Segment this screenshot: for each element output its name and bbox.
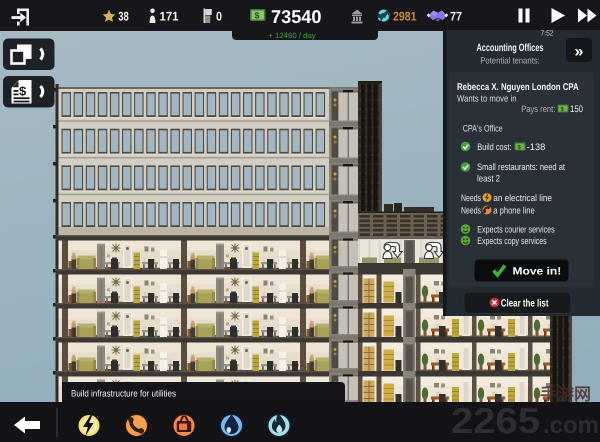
- svg-text:Build infrastructure for utili: Build infrastructure for utilities: [71, 389, 176, 399]
- svg-text:Small restaurants: need at: Small restaurants: need at: [477, 161, 565, 172]
- svg-text:150: 150: [570, 104, 583, 115]
- svg-text:Needs: Needs: [461, 192, 481, 203]
- svg-text:0: 0: [216, 10, 222, 24]
- svg-text:$: $: [255, 11, 260, 21]
- svg-text:Build cost:: Build cost:: [477, 141, 511, 152]
- svg-text:Accounting Offices: Accounting Offices: [477, 42, 544, 54]
- svg-text:2981: 2981: [393, 10, 417, 24]
- svg-text:CPA's Office: CPA's Office: [463, 123, 503, 134]
- svg-text:Rebecca X. Nguyen London CPA: Rebecca X. Nguyen London CPA: [457, 82, 579, 93]
- svg-text:Expects copy services: Expects copy services: [477, 235, 547, 246]
- svg-text:least 2: least 2: [477, 173, 500, 184]
- svg-text:73540: 73540: [271, 6, 322, 27]
- svg-text:Clear the list: Clear the list: [501, 298, 549, 310]
- svg-text:.com: .com: [543, 412, 599, 439]
- svg-text:Pays rent:: Pays rent:: [521, 104, 555, 114]
- svg-text:77: 77: [450, 10, 462, 24]
- svg-text:»: »: [575, 44, 584, 61]
- svg-text:38: 38: [118, 10, 129, 24]
- svg-text:Needs: Needs: [461, 205, 481, 216]
- svg-text:-138: -138: [527, 141, 546, 152]
- svg-text:Potential tenants:: Potential tenants:: [480, 56, 540, 66]
- svg-text:+ 12460 / day: + 12460 / day: [268, 31, 316, 40]
- svg-text:Expects courier services: Expects courier services: [477, 224, 555, 235]
- svg-text:a phone line: a phone line: [493, 205, 534, 216]
- svg-text:2265: 2265: [451, 400, 540, 441]
- svg-text:$: $: [19, 84, 27, 99]
- svg-text:7:52: 7:52: [541, 29, 554, 38]
- svg-text:手游网: 手游网: [540, 385, 591, 404]
- svg-text:171: 171: [160, 10, 179, 24]
- svg-text:Move in!: Move in!: [513, 266, 562, 278]
- svg-text:Wants to move in: Wants to move in: [457, 94, 517, 104]
- svg-text:an electrical line: an electrical line: [493, 192, 552, 203]
